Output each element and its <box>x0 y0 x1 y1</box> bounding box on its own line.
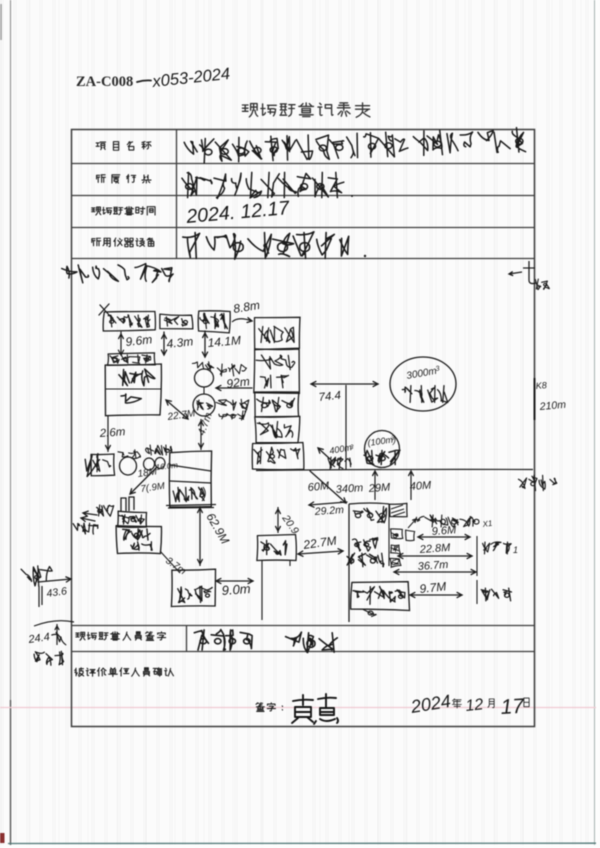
svg-text:12: 12 <box>465 696 485 715</box>
svg-text:X1: X1 <box>481 519 493 529</box>
svg-text:2024: 2024 <box>409 691 453 717</box>
svg-text:20.9: 20.9 <box>279 512 301 537</box>
svg-text:ZA-C008: ZA-C008 <box>76 74 133 90</box>
svg-text:): ) <box>392 435 396 445</box>
svg-text:29M: 29M <box>367 481 391 495</box>
svg-text:1: 1 <box>513 545 518 555</box>
svg-text:74.4: 74.4 <box>318 390 342 404</box>
svg-text:K8: K8 <box>535 380 547 391</box>
svg-text:340m: 340m <box>335 482 363 496</box>
svg-text:9.0m: 9.0m <box>221 581 251 598</box>
svg-text:43.6: 43.6 <box>46 585 68 600</box>
svg-text:29.2m: 29.2m <box>313 504 344 518</box>
svg-text:9.7M: 9.7M <box>419 579 447 596</box>
svg-text:62.9M: 62.9M <box>203 511 232 547</box>
svg-text:14.1M: 14.1M <box>207 333 241 350</box>
svg-text:8.8m: 8.8m <box>232 298 261 316</box>
svg-text:7(.9M: 7(.9M <box>140 481 166 495</box>
svg-text:3: 3 <box>435 365 440 373</box>
svg-text:22.7M: 22.7M <box>301 533 337 552</box>
svg-text:x053-2024: x053-2024 <box>151 65 231 91</box>
svg-text:2.6m: 2.6m <box>98 426 126 440</box>
svg-text:9.6M: 9.6M <box>431 524 457 538</box>
svg-text:36.7m: 36.7m <box>417 559 448 573</box>
svg-text:9.6m: 9.6m <box>125 332 153 349</box>
svg-text:2024. 12.17: 2024. 12.17 <box>185 197 292 228</box>
svg-text:17: 17 <box>500 695 526 719</box>
svg-text:24.4: 24.4 <box>27 631 51 646</box>
svg-text:(100m: (100m <box>367 434 394 448</box>
svg-text:3: 3 <box>350 445 354 451</box>
svg-text:22.8M: 22.8M <box>418 542 451 556</box>
svg-text:3000m: 3000m <box>406 366 438 382</box>
svg-text:92m: 92m <box>226 374 251 391</box>
svg-text:4.3m: 4.3m <box>166 334 194 351</box>
svg-text:40M: 40M <box>409 479 432 493</box>
svg-text:22.7M: 22.7M <box>166 408 197 423</box>
svg-text:210m: 210m <box>538 399 566 413</box>
svg-text:60M: 60M <box>307 480 330 494</box>
